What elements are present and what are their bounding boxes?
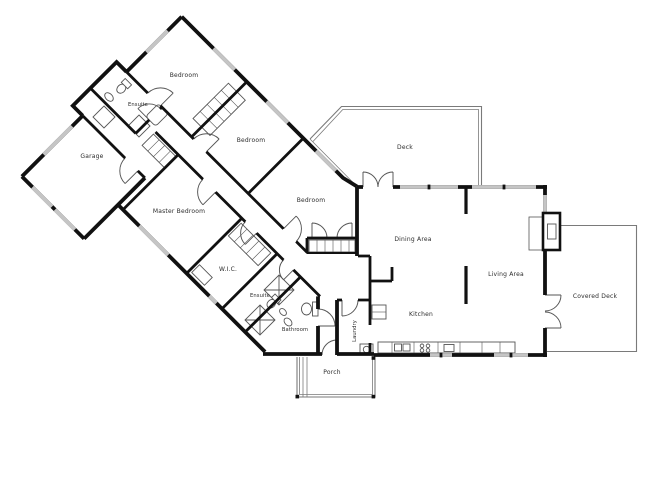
room-label-dining: Dining Area — [394, 236, 431, 243]
door-laundry — [342, 300, 358, 316]
door-bedroom-top — [148, 88, 173, 106]
floor-plan-page: Bedroom Ensuite Garage Master Bedroom Be… — [0, 0, 658, 493]
sink-bathroom — [282, 316, 293, 327]
door-porch — [322, 340, 337, 355]
porch-posts — [296, 356, 376, 398]
room-label-living: Living Area — [488, 271, 524, 278]
stove-burner — [420, 344, 424, 348]
shower-ensuite-top — [146, 104, 169, 127]
door-bedroom-right — [284, 216, 302, 241]
door-ensuite-lower — [279, 260, 293, 280]
door-master — [198, 179, 216, 205]
deck-edge-along-wing — [310, 139, 355, 185]
room-label-garage: Garage — [80, 153, 103, 160]
storage-boxes — [93, 106, 150, 137]
door-bedroom-mid — [194, 134, 219, 152]
counter-appliance — [444, 345, 454, 352]
kitchen-sink-2 — [403, 344, 410, 351]
room-label-bedroom-mid: Bedroom — [237, 137, 266, 144]
room-label-ensuite-top: Ensuite — [128, 102, 148, 108]
room-label-laundry: Laundry — [352, 320, 358, 342]
garage-se-wall — [84, 178, 145, 239]
double-door-deck — [363, 172, 393, 187]
exterior-walls — [22, 17, 547, 357]
floor-plan-canvas: Bedroom Ensuite Garage Master Bedroom Be… — [0, 0, 658, 493]
kitchen-counter — [378, 342, 515, 353]
room-label-bedroom-right: Bedroom — [297, 197, 326, 204]
room-label-bedroom-top: Bedroom — [170, 72, 199, 79]
room-label-porch: Porch — [323, 369, 341, 376]
room-label-kitchen: Kitchen — [409, 311, 433, 318]
double-door-covered-deck — [545, 295, 561, 328]
windows — [33, 31, 546, 355]
bedroom-right-closet — [309, 240, 355, 252]
door-bathroom — [318, 309, 335, 326]
wic-closet-rails — [228, 223, 270, 265]
porch-outline — [297, 357, 375, 397]
room-label-master: Master Bedroom — [153, 208, 205, 215]
toilet-bathroom — [302, 302, 319, 316]
closet-doors-bedroom-right — [312, 223, 352, 238]
stove-burner — [420, 349, 424, 353]
room-label-wic: W.I.C. — [219, 266, 237, 273]
fixtures — [93, 78, 543, 355]
porch-steps — [303, 357, 307, 397]
stove-burner — [426, 349, 430, 353]
kitchen-sink — [395, 344, 402, 351]
deck-outline — [310, 107, 482, 187]
toilet-ensuite-top — [115, 78, 132, 95]
fireplace — [543, 213, 560, 250]
fireplace-hearth — [529, 217, 543, 250]
room-label-ensuite-lower: Ensuite — [250, 293, 270, 299]
wing-top-right-wall — [182, 17, 357, 187]
door-garage — [120, 158, 138, 184]
doors — [120, 88, 561, 355]
room-label-covered-deck: Covered Deck — [573, 293, 618, 300]
stove-burner — [426, 344, 430, 348]
shower-bathroom — [245, 305, 275, 335]
sink-ensuite-lower — [278, 307, 288, 317]
room-label-bathroom: Bathroom — [282, 327, 308, 333]
room-label-deck: Deck — [397, 144, 413, 151]
